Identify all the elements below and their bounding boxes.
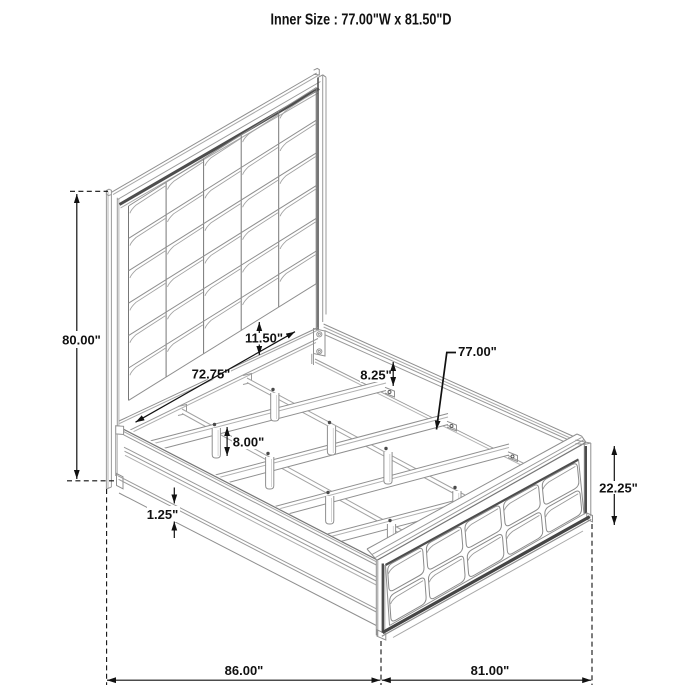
svg-text:1.25": 1.25": [147, 507, 178, 522]
svg-text:22.25": 22.25": [599, 480, 638, 495]
svg-text:11.50": 11.50": [245, 331, 283, 346]
svg-text:72.75": 72.75": [192, 367, 231, 382]
svg-text:86.00": 86.00": [225, 663, 264, 678]
svg-text:Inner Size : 77.00"W x 81.50"D: Inner Size : 77.00"W x 81.50"D: [271, 12, 452, 29]
svg-text:77.00": 77.00": [458, 344, 497, 359]
svg-text:8.00": 8.00": [233, 435, 264, 450]
svg-text:81.00": 81.00": [471, 663, 510, 678]
svg-text:8.25": 8.25": [360, 368, 391, 383]
svg-text:80.00": 80.00": [62, 333, 101, 348]
